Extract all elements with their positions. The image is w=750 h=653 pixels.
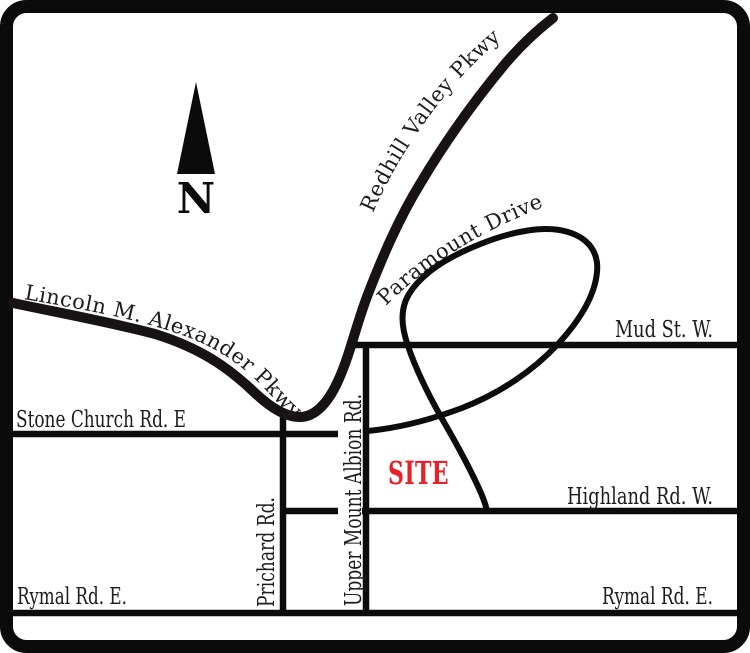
map-canvas: Lincoln M. Alexander Pkwy Redhill Valley…: [0, 0, 750, 653]
site-location-map: Lincoln M. Alexander Pkwy Redhill Valley…: [0, 0, 750, 653]
road-label-highland: Highland Rd. W.: [567, 484, 713, 510]
road-label-paramount-drive: Paramount Drive: [372, 189, 546, 310]
north-arrow-icon: [177, 82, 215, 174]
road-label-stone-church: Stone Church Rd. E: [16, 407, 186, 433]
site-label: SITE: [388, 454, 449, 492]
road-line-lincoln-redhill-pkwy: [13, 18, 553, 417]
road-label-upper-mount-albion: Upper Mount Albion Rd.: [341, 394, 367, 606]
road-label-redhill-valley-pkwy: Redhill Valley Pkwy: [356, 24, 505, 215]
road-label-prichard: Prichard Rd.: [254, 497, 280, 607]
road-label-rymal-west: Rymal Rd. E.: [17, 584, 127, 610]
road-label-mud-st: Mud St. W.: [615, 317, 713, 343]
north-letter: N: [177, 174, 215, 223]
road-label-rymal-east: Rymal Rd. E.: [602, 584, 713, 610]
